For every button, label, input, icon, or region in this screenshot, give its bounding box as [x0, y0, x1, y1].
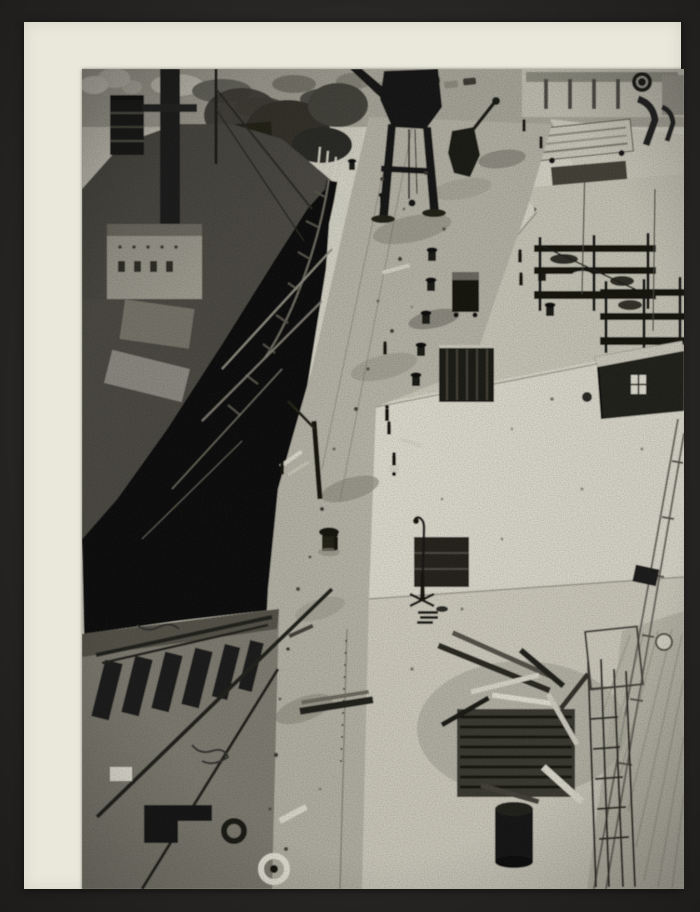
photograph-artwork [82, 69, 684, 889]
scanned-archival-photo: { "photo": { "alt": "Elevated black-and-… [0, 0, 700, 912]
vignette-overlay [82, 69, 684, 889]
photograph [82, 69, 684, 889]
photo-mount [24, 22, 681, 889]
